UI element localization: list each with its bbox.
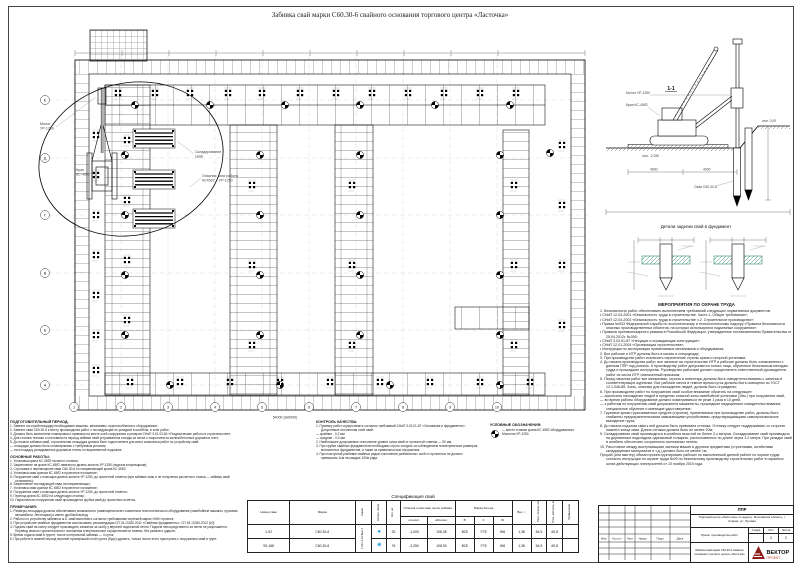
- svg-text:4: 4: [214, 406, 216, 410]
- plan-label-storage: Складирование: [195, 150, 221, 154]
- rev-label: №док.: [639, 537, 648, 541]
- svg-text:Е: Е: [44, 99, 47, 103]
- col-header: Отметка голов сваи после забивки: [400, 501, 455, 517]
- section-label-elev-platform: отм. -2,250: [642, 154, 659, 158]
- detail-figure-1: [628, 237, 694, 296]
- crane-elevation-figure: [650, 39, 743, 148]
- safety-title: МЕРОПРИЯТИЯ ПО ОХРАНЕ ТРУДА: [600, 302, 793, 307]
- safety-items: 1. Безопасность работ обеспечивать выпол…: [600, 309, 793, 466]
- legend-title: УСЛОВНЫЕ ОБОЗНАЧЕНИЯ:: [490, 423, 592, 427]
- rev-label: Подп.: [657, 537, 665, 541]
- rev-label: Кол.уч: [613, 537, 622, 541]
- quality-items: 1. Приемку работ осуществлять согласно т…: [316, 425, 480, 460]
- sheet-value: 2: [764, 534, 779, 542]
- table-row: 93-168 С60.30-6 ⊕ 76 -2,250 108,90 В25 F…: [248, 539, 579, 553]
- col-subheader: абсолют.: [428, 517, 455, 525]
- list-item: 10. Параллельно погружению свай производ…: [10, 499, 238, 503]
- col-subheader: относит.: [400, 517, 427, 525]
- spec-title: Спецификация свай: [240, 494, 586, 499]
- prep-items: 1. Завезти на стройплощадку необходимые …: [10, 425, 238, 452]
- plan-label-danger-zone: Опасная зона работы: [202, 174, 239, 178]
- list-item: 9. Складирование свай производится в шта…: [600, 432, 793, 445]
- rev-label: Изм.: [601, 537, 608, 541]
- stage-sheet-grid: Стадия Лист Листов 2 2: [749, 528, 793, 542]
- svg-text:3: 3: [167, 406, 169, 410]
- list-item: — на площадку укладываются дорожные плит…: [10, 449, 238, 453]
- col-header: Серия: [355, 501, 372, 525]
- title-block: Изм. Кол.уч Лист №док. Подп. Дата ППР То…: [598, 505, 794, 563]
- section-label-pile: Сваи С60.30-6: [694, 185, 717, 189]
- col-subheader: W: [493, 517, 512, 525]
- list-item: 6. При работе в зимний период верхний пр…: [10, 538, 238, 542]
- top-dimension-line: [75, 50, 585, 56]
- section-dim-2: 4000: [703, 168, 711, 172]
- svg-text:Г: Г: [44, 214, 46, 218]
- col-header: Марка бетона: [455, 501, 512, 517]
- protrusion-foundation: [90, 30, 147, 61]
- section-dim-1: 4000: [650, 168, 658, 172]
- spec-table: Номер сваи Марка Серия Условн. обозн. Ко…: [247, 500, 579, 553]
- list-item: 8. До начала подъема сваи к ней должна б…: [600, 424, 793, 432]
- col-header: Вес, т: [512, 501, 531, 525]
- ground-hatch: [606, 148, 740, 151]
- prep-works-block: ПОДГОТОВИТЕЛЬНЫЙ ПЕРИОД: 1. Завезти на с…: [10, 420, 238, 542]
- pile-storage-racks: [133, 129, 175, 228]
- col-subheader: В: [455, 517, 474, 525]
- svg-text:КС-45б2: КС-45б2: [76, 173, 90, 177]
- svg-text:Д: Д: [44, 157, 47, 161]
- pile-specification: Спецификация свай Номер сваи Марка Серия…: [240, 494, 586, 553]
- svg-text:1: 1: [73, 406, 75, 410]
- axis-bubbles-left: Е Д Г В Б А: [41, 96, 50, 390]
- notes-items: 1. Размеры площадки должны обеспечивать …: [10, 510, 238, 541]
- col-header: Примечание: [563, 501, 579, 525]
- svg-text:КС45б2 + УР-1250: КС45б2 + УР-1250: [202, 179, 233, 183]
- col-header: Номер сваи: [248, 501, 290, 525]
- safety-measures-block: МЕРОПРИЯТИЯ ПО ОХРАНЕ ТРУДА 1. Безопасно…: [600, 302, 793, 502]
- works-items: 1. Установка крана КС-45б2 на место стоя…: [10, 460, 238, 503]
- crane-stand-legend-icon: [490, 429, 500, 439]
- list-item: • Приказ №533 Федеральной службы по экол…: [600, 322, 793, 330]
- plan-label-hammer: Молот: [40, 122, 51, 126]
- list-item: 10. Расстояние между выступающими частям…: [600, 445, 793, 453]
- svg-text:2: 2: [120, 406, 122, 410]
- col-header: Условн. обозн.: [372, 501, 387, 525]
- col-subheader: F: [474, 517, 493, 525]
- col-header: Марка: [290, 501, 355, 525]
- revision-grid: Изм. Кол.уч Лист №док. Подп. Дата: [599, 506, 690, 560]
- list-item: 7. Грузовые крюки грузозахватных средств…: [600, 411, 793, 424]
- logo-triangle-icon: [752, 546, 765, 559]
- section-label-elev-zero: отм. 0,00: [762, 119, 776, 123]
- svg-text:6: 6: [308, 406, 310, 410]
- brand-sub: ПРОЕКТ: [767, 556, 781, 560]
- svg-text:5: 5: [261, 406, 263, 410]
- drawing-sheet: Забивка свай марки С60.30-6 свайного осн…: [0, 0, 800, 565]
- sheets-value: 2: [779, 534, 793, 542]
- table-row: 1-92 С60.30-6 1.011.1-10 Вып.1 ● 92 -1,0…: [248, 525, 579, 539]
- svg-text:В: В: [44, 272, 47, 276]
- details-title: Детали заделки свай в фундамент: [661, 224, 732, 229]
- section-label-crane: Кран КС-45б2: [626, 103, 648, 107]
- list-item: 4. До начала производства работ, все зан…: [600, 360, 793, 377]
- list-item: — к работам по погружению свай допускают…: [600, 402, 793, 410]
- plan-label-crane: Кран: [76, 168, 84, 172]
- sheet-title: Забивка свай марки С60.30-6 свайного осн…: [150, 11, 630, 19]
- svg-text:9: 9: [449, 406, 451, 410]
- svg-text:А: А: [44, 384, 47, 388]
- svg-text:7: 7: [355, 406, 357, 410]
- list-item: 4. При поштучной разбивке свайных рядов …: [316, 453, 480, 461]
- col-header: Расх. бетона, м3: [531, 501, 547, 525]
- svg-text:8: 8: [402, 406, 404, 410]
- pile-embedment-details: Детали заделки свай в фундамент: [598, 220, 795, 302]
- stage-value: [749, 534, 764, 542]
- col-header: Расх. металла, кг: [547, 501, 563, 525]
- section-1-1-drawing: 1-1: [598, 36, 795, 220]
- rev-label: Дата: [677, 537, 684, 541]
- section-title: 1-1: [667, 86, 675, 92]
- col-header: Кол, шт.: [387, 501, 401, 525]
- list-item: 5. Перед началом работ все механизмы, ст…: [600, 377, 793, 390]
- quality-control-block: КОНТРОЛЬ КАЧЕСТВА: 1. Приемку работ осущ…: [316, 420, 480, 460]
- detail-figure-2: [700, 237, 766, 296]
- object-name: Торговый центр «Ласточка» по адресу: Мос…: [691, 515, 793, 528]
- svg-text:УР-1250: УР-1250: [40, 127, 54, 131]
- doc-type: Проект производства работ: [691, 528, 749, 542]
- pile-plan-drawing: Молот УР-1250 Кран КС-45б2 Складирование…: [30, 25, 595, 420]
- drawing-name: Забивка свай марки С60.30-6 свайного осн…: [691, 543, 749, 562]
- legend-block: УСЛОВНЫЕ ОБОЗНАЧЕНИЯ: — место стоянки кр…: [490, 423, 592, 439]
- svg-text:10: 10: [495, 406, 499, 410]
- company-logo: ВЕКТОР ПРОЕКТ: [749, 543, 793, 562]
- bottom-dimension-text: 54000 (9х6000): [273, 416, 298, 420]
- legend-crane-stand-text: — место стоянки крана КС 45б2 оборудован…: [502, 429, 588, 437]
- svg-text:свай: свай: [195, 155, 203, 159]
- pile-symbol-2: ⊕: [377, 542, 381, 548]
- doc-code: ППР: [691, 506, 793, 515]
- pile-symbol-1: ●: [377, 529, 381, 535]
- list-item: Прораб (или мастер) обязан проинструктир…: [600, 453, 793, 466]
- rev-label: Лист: [627, 537, 634, 541]
- section-label-hammer: Молот УР-1250: [626, 91, 650, 95]
- list-item: • Правила противопожарного режима в Росс…: [600, 330, 793, 338]
